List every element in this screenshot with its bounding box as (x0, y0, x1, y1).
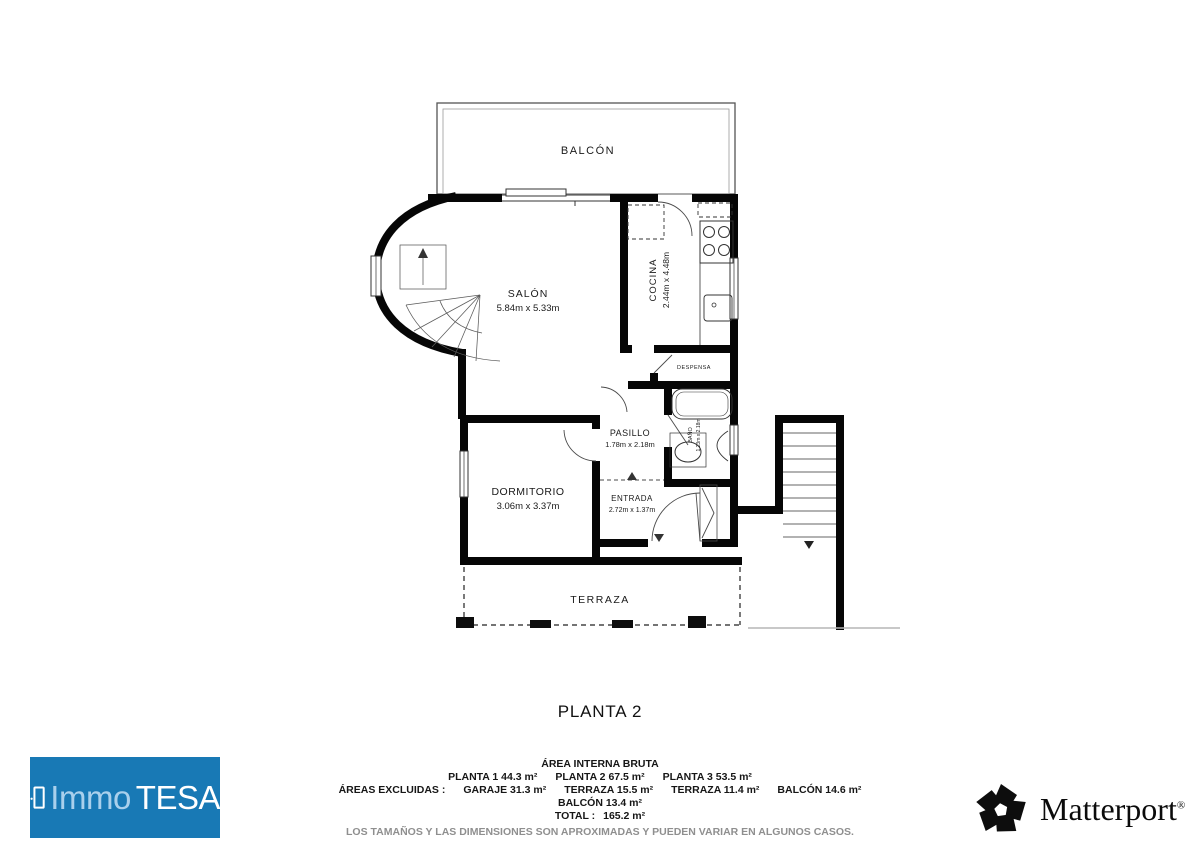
curved-wall (376, 196, 462, 353)
floorplan-page: BALCÓN (0, 0, 1200, 848)
terraza-posts (456, 616, 706, 628)
kitchen-fixtures (628, 203, 733, 345)
page-title: PLANTA 2 (0, 702, 1200, 722)
opening-arrow-down (654, 534, 664, 542)
room-dims-entrada: 2.72m x 1.37m (609, 507, 655, 514)
excluded-terraza2: TERRAZA 11.4 m² (671, 784, 759, 796)
matterport-pinwheel-icon (972, 780, 1030, 838)
closet-leaves (702, 488, 714, 538)
room-label-balcon: BALCÓN (561, 144, 615, 157)
summary-heading: ÁREA INTERNA BRUTA (541, 758, 658, 770)
registered-mark: ® (1177, 799, 1185, 811)
room-label-entrada: ENTRADA (611, 494, 653, 503)
matterport-wordmark: Matterport® (1040, 791, 1185, 828)
total-label: TOTAL : (555, 810, 595, 822)
cabinet-dashed (628, 205, 664, 239)
exterior-stairs (748, 433, 900, 628)
stair-up-arrow (418, 248, 428, 258)
room-dims-pasillo: 1.78m x 2.18m (605, 440, 655, 449)
despensa-door-leaf (654, 355, 672, 373)
summary-balcon-line: BALCÓN 13.4 m² (558, 797, 642, 809)
immotesa-immo-text: Immo (50, 779, 131, 817)
room-label-salon: SALÓN (508, 287, 549, 300)
room-label-cocina: COCINA (648, 259, 659, 302)
opening-arrow-up (627, 472, 637, 480)
front-door-leaf (696, 493, 700, 541)
excluded-label: ÁREAS EXCLUIDAS : (339, 784, 446, 796)
washbasin (717, 431, 728, 461)
stair-down-arrow (804, 541, 814, 549)
room-dims-salon: 5.84m x 5.33m (497, 303, 560, 314)
planta3-area: PLANTA 3 53.5 m² (663, 771, 752, 783)
stove (700, 221, 733, 263)
disclaimer-text: LOS TAMAÑOS Y LAS DIMENSIONES SON APROXI… (346, 826, 854, 838)
dormitorio-door-arc (564, 430, 596, 461)
room-label-terraza: TERRAZA (570, 594, 630, 606)
room-label-despensa: DESPENSA (677, 365, 711, 371)
planta1-area: PLANTA 1 44.3 m² (448, 771, 537, 783)
kitchen-door-arc (658, 202, 692, 236)
bathtub (672, 389, 732, 419)
immotesa-tesa-text: TESA (136, 779, 220, 817)
room-label-pasillo: PASILLO (610, 428, 650, 438)
excluded-garaje: GARAJE 31.3 m² (463, 784, 546, 796)
summary-excluded: ÁREAS EXCLUIDAS : GARAJE 31.3 m² TERRAZA… (339, 784, 862, 796)
room-dims-cocina: 2.44m x 4.48m (661, 252, 671, 308)
excluded-terraza1: TERRAZA 15.5 m² (564, 784, 653, 796)
total-value: 165.2 m² (603, 810, 645, 822)
room-dims-bano: 1.23m x 2.18m (696, 418, 702, 451)
summary-plantas: PLANTA 1 44.3 m² PLANTA 2 67.5 m² PLANTA… (448, 771, 752, 783)
salon-pasillo-door-arc (601, 387, 627, 412)
planta2-area: PLANTA 2 67.5 m² (555, 771, 644, 783)
room-label-bano: BAÑO (687, 426, 694, 442)
sink (704, 295, 732, 321)
matterport-logo: Matterport® (972, 780, 1185, 838)
room-balcony: BALCÓN (437, 103, 735, 194)
sliding-door (506, 189, 566, 196)
summary-total: TOTAL : 165.2 m² (555, 810, 645, 822)
floor-plan: BALCÓN (370, 95, 910, 640)
spiral-staircase (400, 245, 500, 361)
immotesa-logo: ImmoTESA (30, 757, 220, 838)
front-door-arc (652, 493, 700, 541)
cabinet-dashed (698, 203, 732, 217)
room-terraza: TERRAZA (456, 567, 740, 628)
room-dims-dormitorio: 3.06m x 3.37m (497, 501, 560, 512)
excluded-balcon: BALCÓN 14.6 m² (777, 784, 861, 796)
room-label-dormitorio: DORMITORIO (491, 486, 564, 498)
door-icon (30, 769, 45, 827)
doors (564, 202, 717, 542)
